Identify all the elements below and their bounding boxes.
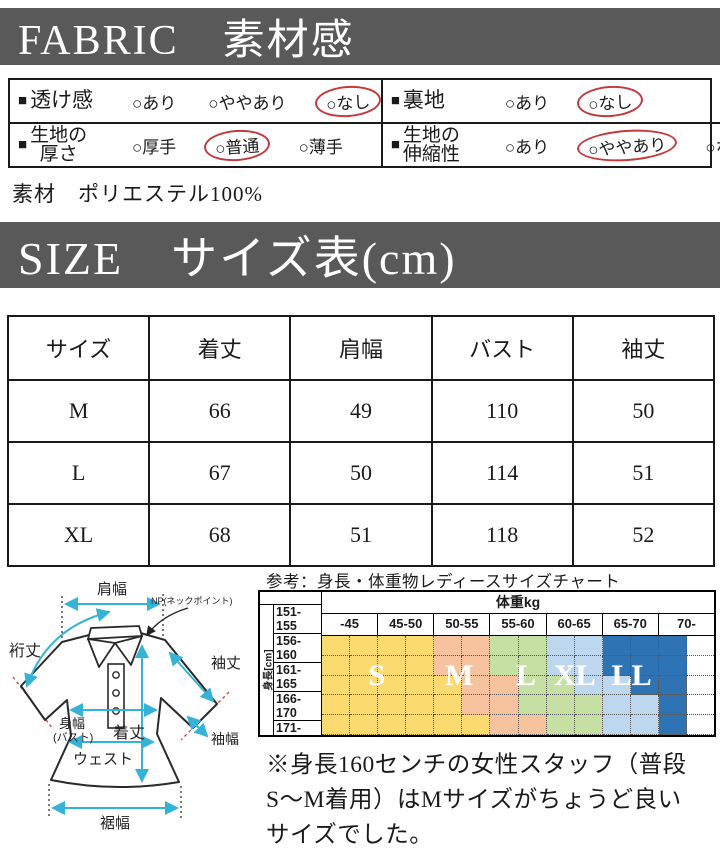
size-grid-cell [631, 715, 659, 735]
height-weight-size-chart: 身長[cm] 151-155156-160161-165166-170171- … [258, 590, 716, 737]
size-table-cell: L [8, 442, 149, 504]
size-grid-cell [519, 695, 547, 715]
fabric-label: ■透け感 [10, 90, 118, 111]
fabric-label-text: 生地の伸縮性 [403, 126, 460, 165]
size-grid-cell [406, 636, 434, 656]
size-table-header-row: サイズ着丈肩幅バスト袖丈 [8, 316, 714, 380]
chart-left-block: 身長[cm] 151-155156-160161-165166-170171- [260, 592, 322, 735]
size-grid-cell [631, 636, 659, 656]
fabric-option-selected: ○普通 [203, 127, 271, 163]
fabric-label: ■裏地 [383, 90, 491, 111]
size-grid-cell [547, 636, 575, 656]
size-grid-cell [490, 656, 518, 676]
size-grid-cell [434, 636, 462, 656]
note-line: サイズでした。 [266, 818, 716, 852]
size-grid-cell [603, 715, 631, 735]
bullet-square-icon: ■ [18, 138, 27, 153]
size-table-cell: 67 [149, 442, 290, 504]
weight-range-header: 50-55 [434, 614, 490, 636]
height-range-label: 166-170 [274, 692, 322, 721]
height-row-labels: 151-155156-160161-165166-170171- [274, 605, 322, 735]
size-grid-row [322, 715, 714, 735]
fabric-cell: ■透け感○あり○ややあり○なし [10, 80, 383, 124]
size-table-cell: 118 [432, 504, 573, 566]
size-grid-cell [350, 695, 378, 715]
bullet-square-icon: ■ [391, 138, 400, 153]
size-grid-cell [490, 695, 518, 715]
size-grid-cell [350, 636, 378, 656]
size-grid-cell [462, 695, 490, 715]
size-grid-cell [322, 695, 350, 715]
label-neck-point: NP(ネックポイント) [151, 596, 233, 606]
chart-grid-block: 体重kg -4545-5050-5555-6060-6565-7070- SML… [322, 592, 714, 735]
fabric-cell: ■生地の厚さ○厚手○普通○薄手 [10, 124, 383, 166]
size-table-header-cell: バスト [432, 316, 573, 380]
size-table-cell: 66 [149, 380, 290, 442]
size-table-cell: XL [8, 504, 149, 566]
size-grid-cell [378, 636, 406, 656]
size-grid-cell [575, 715, 603, 735]
fabric-attributes-table: ■透け感○あり○ややあり○なし■裏地○あり○なし■生地の厚さ○厚手○普通○薄手■… [8, 78, 712, 168]
label-garment-length: 着丈 [113, 724, 145, 742]
size-band-letter: M [445, 661, 473, 691]
size-grid-cell [575, 636, 603, 656]
fabric-option: ○なし [701, 132, 720, 159]
size-grid-cell [519, 715, 547, 735]
size-grid-cell [322, 715, 350, 735]
collar-band [88, 626, 142, 639]
size-table-cell: 110 [432, 380, 573, 442]
material-line: 素材 ポリエステル100% [12, 178, 263, 208]
size-grid-cell [659, 656, 687, 676]
size-band-letter: LL [612, 661, 652, 691]
fabric-cell: ■裏地○あり○なし [383, 80, 720, 124]
label-waist: ウェスト [73, 751, 133, 768]
size-grid-cell [659, 636, 687, 656]
fabric-label-text: 裏地 [403, 90, 445, 111]
size-grid-cell [462, 636, 490, 656]
size-grid-cell [434, 715, 462, 735]
size-section-banner: SIZE サイズ表(cm) [0, 222, 720, 288]
label-body-width-bust: (バスト) [53, 731, 93, 744]
size-grid-cell [406, 695, 434, 715]
size-grid-row [322, 695, 714, 715]
fabric-option: ○あり [501, 132, 553, 159]
size-table-cell: 51 [573, 442, 714, 504]
label-hem-width: 裾幅 [100, 815, 130, 832]
label-sleeve-length: 袖丈 [211, 655, 241, 672]
size-grid-cell [406, 656, 434, 676]
size-table-cell: 50 [290, 442, 431, 504]
size-grid-cell [547, 715, 575, 735]
bullet-square-icon: ■ [18, 94, 27, 109]
size-table-row: L675011451 [8, 442, 714, 504]
size-grid-cell [603, 695, 631, 715]
size-table-cell: 52 [573, 504, 714, 566]
size-table-header-cell: 袖丈 [573, 316, 714, 380]
size-table-cell: 50 [573, 380, 714, 442]
fabric-section-banner: FABRIC 素材感 [0, 8, 720, 65]
size-grid-cell [322, 636, 350, 656]
fabric-option-selected: ○なし [314, 83, 382, 119]
label-body-width: 身幅 [59, 716, 85, 731]
size-table-cell: M [8, 380, 149, 442]
np-pointer-arrow [147, 608, 188, 635]
height-range-label: 156-160 [274, 634, 322, 663]
size-table-cell: 51 [290, 504, 431, 566]
size-grid-cell [687, 715, 714, 735]
fabric-option-selected: ○ややあり [576, 126, 678, 164]
size-band-letter: S [369, 661, 386, 691]
size-table-row: M664911050 [8, 380, 714, 442]
size-grid-cell [378, 695, 406, 715]
size-table-cell: 114 [432, 442, 573, 504]
size-table-header-cell: 着丈 [149, 316, 290, 380]
size-grid-cell [406, 715, 434, 735]
weight-range-header: 55-60 [490, 614, 546, 636]
size-table: サイズ着丈肩幅バスト袖丈 M664911050L675011451XL68511… [7, 315, 715, 567]
size-band-letter: XL [554, 661, 596, 691]
size-grid-cell [378, 715, 406, 735]
size-table-cell: 49 [290, 380, 431, 442]
size-grid-cell [490, 636, 518, 656]
size-grid-cell [350, 715, 378, 735]
weight-range-header: 60-65 [547, 614, 603, 636]
weight-range-header: 70- [659, 614, 714, 636]
fabric-options: ○あり○なし [491, 86, 644, 117]
buttons [113, 672, 119, 714]
size-grid-cell [603, 636, 631, 656]
size-grid-cell [490, 715, 518, 735]
height-axis-label-cell: 身長[cm] [260, 605, 274, 735]
weight-axis-header: 体重kg [322, 592, 714, 614]
weight-range-header: 65-70 [603, 614, 659, 636]
weight-column-headers: -4545-5050-5555-6060-6565-7070- [322, 614, 714, 636]
fabric-option: ○あり [128, 88, 180, 115]
chart-row-label-block: 身長[cm] 151-155156-160161-165166-170171- [260, 605, 322, 735]
fabric-option: ○厚手 [128, 132, 180, 159]
size-grid-cell [519, 636, 547, 656]
chart-corner-cell [260, 592, 322, 605]
fabric-cell: ■生地の伸縮性○あり○ややあり○なし [383, 124, 720, 166]
fabric-label-text: 透け感 [30, 90, 93, 111]
size-grid-cell [322, 676, 350, 696]
size-grid-cell [547, 695, 575, 715]
note-line: ※身長160センチの女性スタッフ（普段 [266, 748, 716, 783]
size-grid-cell [687, 695, 714, 715]
fabric-option: ○薄手 [295, 132, 347, 159]
height-range-label: 151-155 [274, 605, 322, 634]
label-yuki-length: 裄丈 [9, 642, 41, 660]
height-range-label: 161-165 [274, 663, 322, 692]
fabric-label: ■生地の厚さ [10, 126, 118, 165]
size-table-row: XL685111852 [8, 504, 714, 566]
size-grid-cell [575, 695, 603, 715]
fabric-label-text: 生地の厚さ [30, 126, 87, 165]
height-axis-label: 身長[cm] [259, 649, 274, 690]
size-table-header-cell: 肩幅 [290, 316, 431, 380]
shirt-measurement-diagram: 肩幅 裄丈 NP(ネックポイント) 袖丈 袖幅 身幅 (バスト) 着丈 ウェスト… [4, 578, 256, 852]
fabric-label: ■生地の伸縮性 [383, 126, 491, 165]
weight-range-header: 45-50 [378, 614, 434, 636]
fabric-option: ○あり [501, 88, 553, 115]
note-line: S〜M着用）はMサイズがちょうど良い [266, 783, 716, 818]
size-grid-cell [659, 676, 687, 696]
size-grid-cell [434, 695, 462, 715]
size-grid-cell [687, 676, 714, 696]
size-grid-cell [659, 695, 687, 715]
size-grid-cell [406, 676, 434, 696]
height-range-label: 171- [274, 721, 322, 735]
weight-range-header: -45 [322, 614, 378, 636]
size-band-letter: L [516, 661, 536, 691]
size-grid-cell [659, 715, 687, 735]
label-shoulder-width: 肩幅 [97, 581, 127, 598]
size-grid-cell [687, 636, 714, 656]
reference-chart-caption: 参考：身長・体重物レディースサイズチャート [266, 568, 620, 592]
fabric-options: ○あり○ややあり○なし [118, 86, 381, 117]
size-grid-cell [462, 715, 490, 735]
size-grid-cell [687, 656, 714, 676]
size-grid-cell [322, 656, 350, 676]
fabric-option: ○ややあり [204, 88, 290, 115]
size-color-grid: SMLXLLL [322, 636, 714, 735]
size-table-header-cell: サイズ [8, 316, 149, 380]
size-table-cell: 68 [149, 504, 290, 566]
fabric-option-selected: ○なし [576, 83, 644, 119]
fabric-options: ○あり○ややあり○なし [491, 130, 720, 161]
label-sleeve-width: 袖幅 [211, 731, 239, 747]
bullet-square-icon: ■ [391, 94, 400, 109]
size-grid-cell [631, 695, 659, 715]
size-grid-cell [490, 676, 518, 696]
fabric-options: ○厚手○普通○薄手 [118, 130, 347, 161]
size-grid-row [322, 636, 714, 656]
staff-fit-note: ※身長160センチの女性スタッフ（普段S〜M着用）はMサイズがちょうど良いサイズ… [266, 748, 716, 852]
product-info-sheet: FABRIC 素材感 ■透け感○あり○ややあり○なし■裏地○あり○なし■生地の厚… [0, 0, 720, 852]
